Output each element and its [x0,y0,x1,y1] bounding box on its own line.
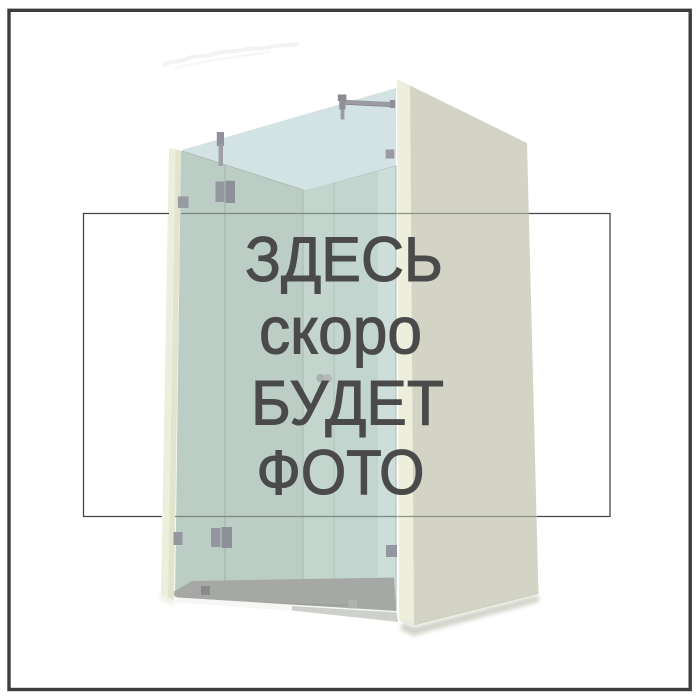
svg-text:ФОТО: ФОТО [257,438,425,508]
svg-text:БУДЕТ: БУДЕТ [251,369,444,439]
svg-text:ЗДЕСЬ: ЗДЕСЬ [245,225,443,295]
svg-text:скоро: скоро [259,294,422,369]
